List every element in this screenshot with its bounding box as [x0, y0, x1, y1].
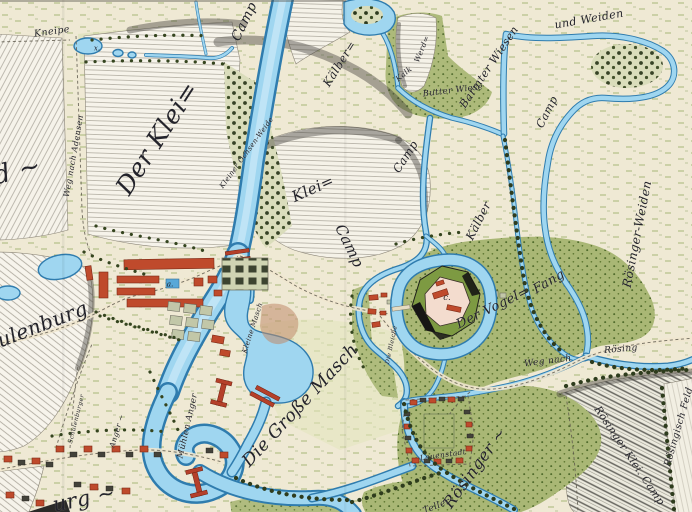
map-marker-pond-x: x. [94, 46, 100, 53]
map-marker-estate-a: a. [167, 280, 174, 288]
tree-grove [591, 44, 663, 88]
historical-map: Kneipe ld ~ Camp Der Klei= Weg nach Aden… [0, 0, 692, 512]
map-marker-fort-c: c. [443, 294, 450, 303]
